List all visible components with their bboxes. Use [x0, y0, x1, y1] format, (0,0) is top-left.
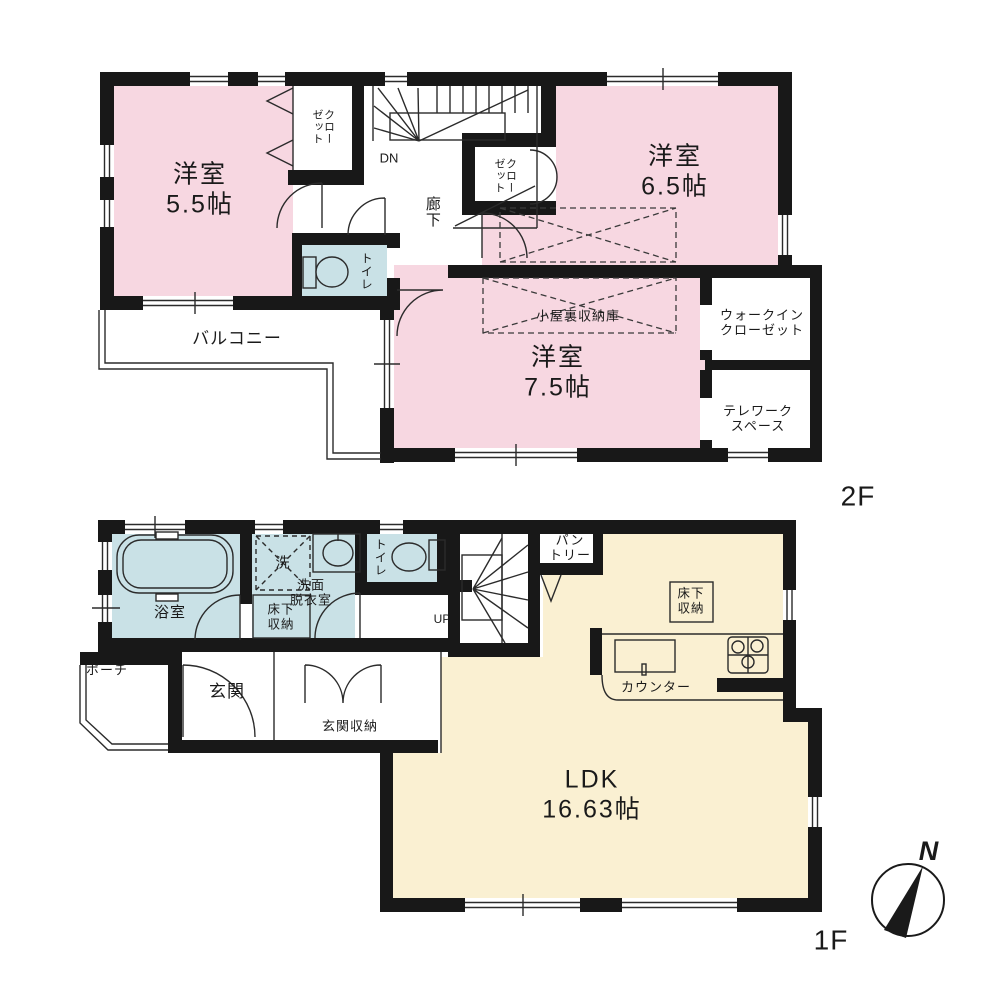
label-ldk: LDK 16.63帖 [542, 766, 642, 825]
label-kitchen-counter: カウンター [621, 679, 691, 694]
label-room-5-5: 洋室 5.5帖 [166, 161, 234, 220]
label-toilet-2f: トイレ [360, 249, 373, 293]
label-pantry: パン トリー [549, 533, 591, 564]
label-balcony: バルコニー [192, 329, 282, 349]
label-washroom: 洗面 脱衣室 [290, 578, 332, 609]
label-hallway: 廊下 [424, 194, 440, 230]
label-stairs-down: DN [380, 150, 399, 165]
compass-icon [872, 864, 944, 938]
label-washer: 洗 [276, 555, 291, 572]
label-porch: ポーチ [86, 662, 128, 677]
label-room-6-5: 洋室 6.5帖 [641, 143, 709, 202]
label-toilet-1f: トイレ [374, 535, 387, 579]
label-room-7-5: 洋室 7.5帖 [524, 344, 592, 403]
label-entrance: 玄関 [209, 682, 245, 702]
label-stairs-up: UP [434, 612, 451, 626]
label-closet-a: クローゼット [310, 107, 333, 147]
label-closet-b: クローゼット [492, 156, 515, 196]
label-walk-in-closet: ウォークイン クローゼット [720, 308, 804, 339]
floorplan-page: 洋室 5.5帖 洋室 6.5帖 洋室 7.5帖 バルコニー 廊下 クローゼット … [0, 0, 1000, 1000]
label-underfloor-storage-washroom: 床下 収納 [267, 602, 294, 632]
label-attic-storage: 小屋裏収納庫 [536, 308, 620, 323]
label-bath: 浴室 [154, 604, 186, 622]
label-underfloor-storage-ldk: 床下 収納 [677, 586, 704, 616]
label-floor-1f: 1F [814, 923, 849, 956]
label-telework-space: テレワーク スペース [723, 404, 793, 435]
label-compass-north: N [919, 836, 940, 868]
floor2-toilet-fixture [303, 257, 348, 288]
label-floor-2f: 2F [841, 479, 876, 512]
label-entrance-storage: 玄関収納 [322, 718, 378, 733]
